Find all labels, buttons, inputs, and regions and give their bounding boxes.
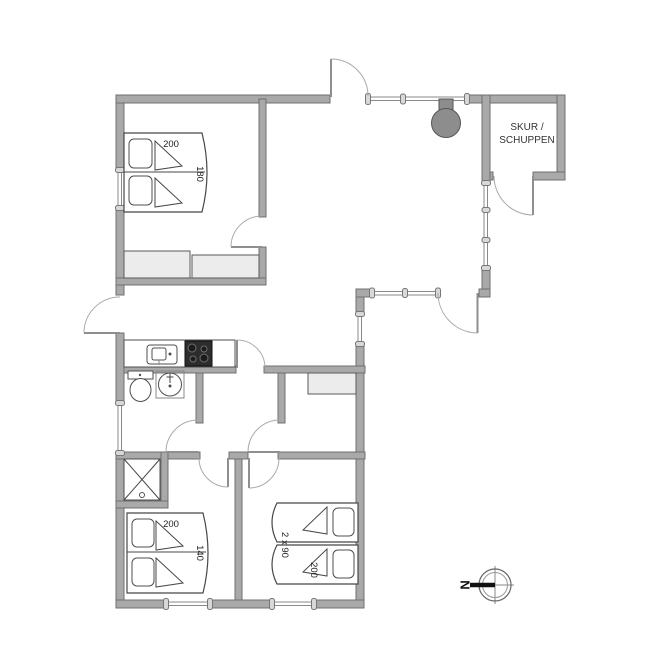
wall-segment [210, 600, 272, 608]
door-swing [237, 340, 265, 368]
bed-length-label: 200 [308, 562, 319, 578]
window [116, 401, 125, 456]
floor-plan-page: 200 180 SKUR / SCHUPPEN [0, 0, 653, 667]
wall-segment [116, 278, 266, 285]
bedroom-3: 2 x 90 200 [272, 503, 358, 584]
wall-segment [196, 373, 203, 423]
bedroom-2: 200 140 [127, 513, 208, 593]
door-swing [494, 176, 533, 215]
wall-segment [116, 95, 124, 170]
kitchen-counter [124, 340, 235, 367]
wardrobe-icon [192, 255, 259, 278]
door-swing [166, 420, 198, 452]
wall-segment [168, 452, 200, 459]
cooktop-icon [185, 341, 212, 366]
kitchen [124, 340, 235, 367]
window [270, 599, 317, 610]
wall-segment [116, 333, 124, 403]
window [164, 599, 213, 610]
wall-segment [116, 453, 124, 608]
window [356, 312, 365, 347]
window [482, 181, 491, 271]
wardrobe-icon [124, 251, 190, 278]
window [116, 168, 125, 211]
wall-segment [264, 366, 365, 373]
door-swing [438, 293, 478, 333]
wall-segment [278, 452, 365, 459]
door-swing [84, 297, 120, 333]
pillow [129, 139, 152, 168]
pillow [129, 176, 152, 205]
living-room [432, 99, 461, 138]
shed-label-line1: SKUR / [510, 122, 544, 133]
pillow [132, 558, 154, 586]
wall-segment [557, 95, 565, 180]
door-swing [249, 458, 279, 488]
shower-icon [124, 459, 160, 500]
cabinet-icon [308, 373, 356, 394]
floor-plan: 200 180 SKUR / SCHUPPEN [0, 0, 653, 667]
wall-segment [116, 95, 330, 103]
wall-segment [533, 172, 565, 180]
shed-label-line2: SCHUPPEN [499, 135, 555, 146]
door-swing [331, 59, 368, 97]
wall-segment [259, 247, 266, 278]
storage-room [308, 373, 356, 394]
pillow [333, 508, 354, 536]
door-swing [199, 458, 228, 487]
wall-segment [235, 459, 242, 600]
wall-segment [116, 600, 166, 608]
wall-segment [482, 95, 490, 183]
bed-width-label: 200 [163, 139, 179, 150]
wall-segment [314, 600, 364, 608]
bed-width-label: 200 [163, 519, 179, 530]
window [366, 94, 470, 105]
wood-stove-icon [432, 99, 461, 138]
toilet-icon [128, 371, 153, 402]
master-bedroom: 200 180 [124, 133, 259, 278]
washbasin-icon [156, 371, 184, 398]
window [370, 288, 441, 298]
pillow [333, 550, 354, 578]
pillow [132, 519, 154, 547]
door-swing [231, 216, 262, 247]
shed-room: SKUR / SCHUPPEN [499, 122, 555, 146]
wall-segment [278, 373, 285, 423]
door-swing [248, 420, 280, 452]
bed-length-label: 140 [194, 545, 205, 561]
wall-segment [479, 289, 490, 297]
wall-segment [116, 501, 168, 508]
bed-length-label: 180 [194, 166, 205, 182]
wall-segment [229, 452, 248, 459]
wall-segment [259, 99, 266, 217]
kitchen-sink-icon [147, 345, 177, 365]
compass-north-label: N [458, 580, 473, 589]
wall-segment [161, 452, 168, 508]
bathroom [124, 371, 184, 500]
bed-count-label: 2 x 90 [279, 532, 290, 558]
compass-rose: N [458, 566, 514, 604]
